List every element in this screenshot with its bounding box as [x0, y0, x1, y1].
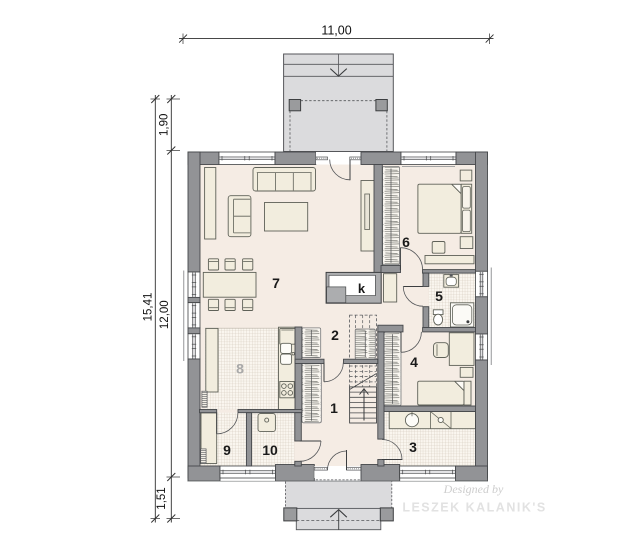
svg-text:7: 7: [272, 275, 280, 291]
svg-text:k: k: [358, 281, 366, 296]
svg-text:11,00: 11,00: [321, 24, 351, 38]
svg-text:1,90: 1,90: [159, 114, 171, 136]
svg-text:9: 9: [223, 442, 231, 458]
svg-text:3: 3: [409, 439, 417, 455]
svg-text:5: 5: [435, 288, 443, 304]
svg-text:6: 6: [402, 234, 410, 250]
svg-text:1,51: 1,51: [156, 487, 168, 509]
svg-text:4: 4: [410, 354, 418, 370]
svg-text:8: 8: [236, 361, 244, 377]
svg-text:15,41: 15,41: [143, 293, 155, 322]
svg-text:1: 1: [330, 400, 338, 416]
svg-text:LESZEK KALANIK'S: LESZEK KALANIK'S: [402, 501, 546, 515]
svg-text:10: 10: [262, 442, 278, 458]
svg-text:12,00: 12,00: [159, 300, 171, 329]
svg-text:2: 2: [331, 327, 339, 343]
svg-text:Designed by: Designed by: [443, 482, 504, 496]
